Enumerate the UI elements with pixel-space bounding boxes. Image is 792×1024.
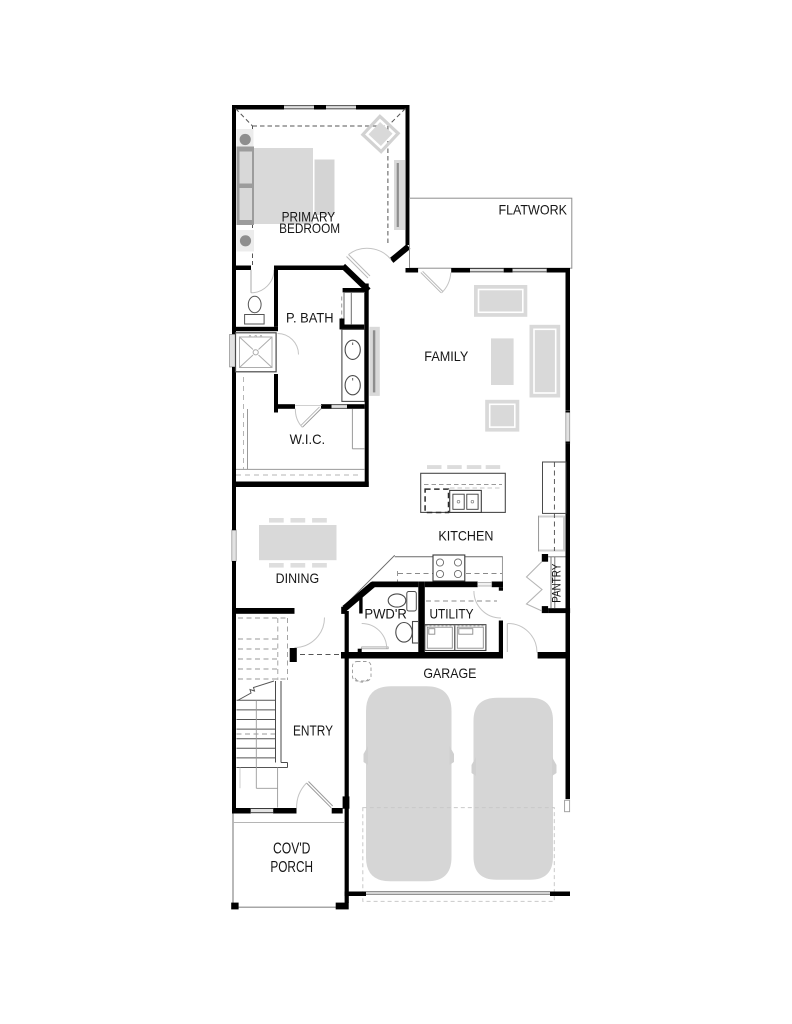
- svg-text:ENTRY: ENTRY: [293, 724, 333, 740]
- svg-text:KITCHEN: KITCHEN: [438, 527, 493, 543]
- svg-text:GARAGE: GARAGE: [423, 665, 476, 681]
- svg-text:UTILITY: UTILITY: [430, 606, 475, 622]
- svg-text:BEDROOM: BEDROOM: [279, 220, 340, 236]
- svg-text:DINING: DINING: [276, 570, 320, 586]
- svg-text:FAMILY: FAMILY: [424, 348, 469, 364]
- svg-text:PWD'R: PWD'R: [364, 606, 407, 622]
- svg-text:W.I.C.: W.I.C.: [290, 431, 326, 447]
- svg-text:P. BATH: P. BATH: [286, 310, 334, 326]
- svg-text:FLATWORK: FLATWORK: [498, 201, 567, 217]
- svg-text:PORCH: PORCH: [270, 859, 313, 876]
- svg-text:COV'D: COV'D: [273, 841, 311, 858]
- svg-text:PANTRY: PANTRY: [551, 563, 563, 602]
